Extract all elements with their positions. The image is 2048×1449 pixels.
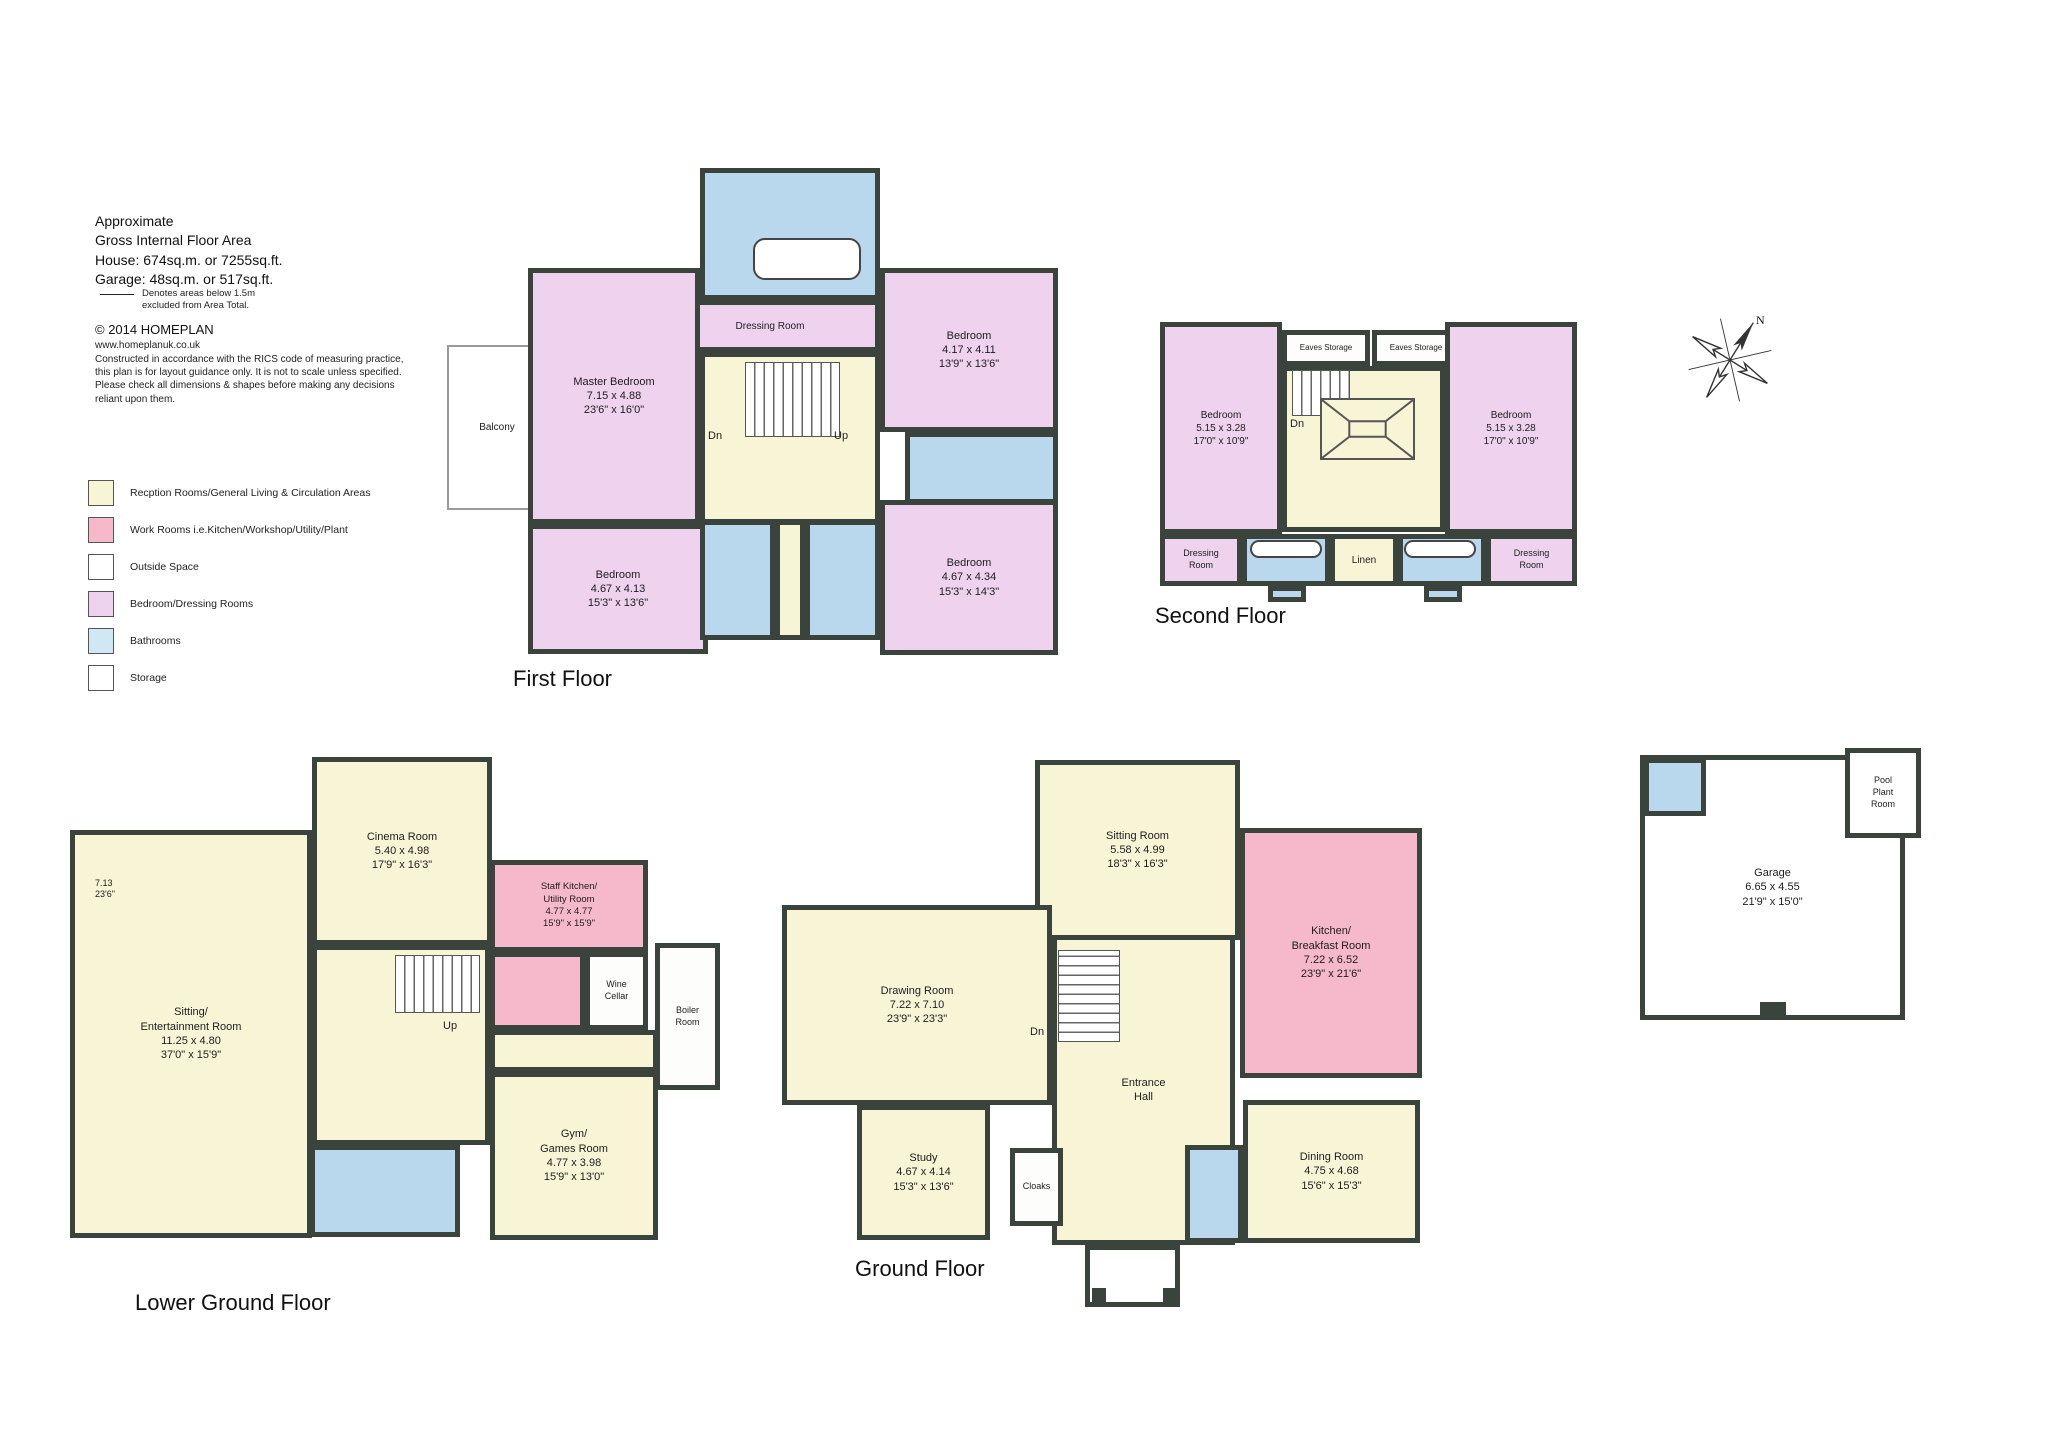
legend-label: Outside Space (130, 561, 199, 573)
room-label: Dressing Room (1183, 548, 1219, 571)
legend-row-work: Work Rooms i.e.Kitchen/Workshop/Utility/… (88, 517, 370, 543)
room-label: Study 4.67 x 4.14 15'3" x 13'6" (893, 1151, 953, 1194)
room-eaves-storage-left: Eaves Storage (1282, 330, 1370, 366)
legend-label: Recption Rooms/General Living & Circulat… (130, 487, 370, 499)
legend-row-bedroom: Bedroom/Dressing Rooms (88, 591, 370, 617)
legend-row-outside: Outside Space (88, 554, 370, 580)
area-summary-line: Approximate (95, 212, 283, 231)
room-kitchen-breakfast-room: Kitchen/ Breakfast Room 7.22 x 6.52 23'9… (1240, 828, 1422, 1078)
room-bath-tab-right (1424, 586, 1462, 602)
legend-swatch (88, 480, 114, 506)
disclaimer-text: Constructed in accordance with the RICS … (95, 353, 405, 406)
floor-title-ground-floor: Ground Floor (855, 1256, 985, 1282)
room-label: Boiler Room (675, 1005, 699, 1028)
room-lgf-bathroom (310, 1145, 460, 1237)
room-label: Staff Kitchen/ Utility Room 4.77 x 4.77 … (541, 881, 597, 930)
room-label: Sitting/ Entertainment Room 11.25 x 4.80… (141, 1005, 242, 1062)
plan-text-dn: Dn (1290, 418, 1304, 432)
room-label: Bedroom 5.15 x 3.28 17'0" x 10'9" (1484, 409, 1539, 448)
room-label: Eaves Storage (1300, 343, 1352, 353)
copyright-text: © 2014 HOMEPLAN (95, 322, 214, 337)
area-summary: Approximate Gross Internal Floor Area Ho… (95, 212, 283, 289)
room-bedroom-left: Bedroom 5.15 x 3.28 17'0" x 10'9" (1160, 322, 1282, 534)
plan-text-dn: Dn (708, 430, 722, 444)
website-text: www.homeplanuk.co.uk (95, 340, 200, 351)
floor-title-first-floor: First Floor (513, 666, 612, 692)
bath-fixture (1404, 540, 1476, 558)
floor-title-second-floor: Second Floor (1155, 603, 1286, 629)
room-label: Eaves Storage (1390, 343, 1442, 353)
area-note: Denotes areas below 1.5m excluded from A… (100, 288, 312, 313)
room-label: Bedroom 4.67 x 4.34 15'3" x 14'3" (939, 556, 999, 599)
bath-fixture (753, 238, 861, 280)
legend-row-bathrooms: Bathrooms (88, 628, 370, 654)
roof-lantern-glyph (1320, 398, 1415, 460)
room-label: Entrance Hall (1121, 1076, 1165, 1105)
legend-swatch (88, 665, 114, 691)
room-linen: Linen (1330, 534, 1398, 586)
room-garage-bathroom (1644, 758, 1706, 816)
room-label: Balcony (479, 421, 515, 434)
room-label: Cloaks (1023, 1181, 1051, 1193)
room-landing-south (775, 520, 805, 640)
room-cinema-room: Cinema Room 5.40 x 4.98 17'9" x 16'3" (312, 757, 492, 945)
room-label: Dressing Room (736, 320, 805, 333)
room-dressing-room-left: Dressing Room (1160, 534, 1242, 586)
room-sitting-room: Sitting Room 5.58 x 4.99 18'3" x 16'3" (1035, 760, 1240, 940)
plan-text-up: Up (443, 1020, 457, 1034)
room-cloaks: Cloaks (1010, 1148, 1063, 1226)
room-pool-plant-room: Pool Plant Room (1845, 748, 1921, 838)
stairs-glyph (1058, 950, 1120, 1042)
room-study: Study 4.67 x 4.14 15'3" x 13'6" (857, 1105, 990, 1240)
wall-block (1760, 1002, 1786, 1016)
legend-swatch (88, 628, 114, 654)
room-label: Garage 6.65 x 4.55 21'9" x 15'0" (1742, 866, 1802, 909)
room-bedroom-sw: Bedroom 4.67 x 4.13 15'3" x 13'6" (528, 524, 708, 654)
room-label: Gym/ Games Room 4.77 x 3.98 15'9" x 13'0… (540, 1127, 608, 1184)
compass-north-label: N (1756, 313, 1765, 327)
legend-row-storage: Storage (88, 665, 370, 691)
legend: Recption Rooms/General Living & Circulat… (88, 480, 370, 702)
room-boiler-room: Boiler Room (655, 943, 720, 1090)
room-bath-tab-left (1268, 586, 1306, 602)
room-master-bathroom (700, 168, 880, 300)
room-drawing-room: Drawing Room 7.22 x 7.10 23'9" x 23'3" (782, 905, 1052, 1105)
stairs-glyph (395, 955, 480, 1013)
room-utility-lower (490, 952, 585, 1030)
room-label: Wine Cellar (605, 979, 629, 1002)
plan-text-713236: 7.13 23'6" (95, 878, 115, 901)
legend-label: Bathrooms (130, 635, 181, 647)
dash-glyph (100, 294, 134, 295)
legend-label: Bedroom/Dressing Rooms (130, 598, 253, 610)
room-dining-room: Dining Room 4.75 x 4.68 15'6" x 15'3" (1243, 1100, 1420, 1243)
stairs-glyph (745, 362, 840, 437)
room-label: Master Bedroom 7.15 x 4.88 23'6" x 16'0" (573, 375, 654, 418)
room-gym-games-room: Gym/ Games Room 4.77 x 3.98 15'9" x 13'0… (490, 1072, 658, 1240)
legend-row-reception: Recption Rooms/General Living & Circulat… (88, 480, 370, 506)
room-label: Dining Room 4.75 x 4.68 15'6" x 15'3" (1300, 1150, 1364, 1193)
room-label: Sitting Room 5.58 x 4.99 18'3" x 16'3" (1106, 829, 1169, 872)
room-label: Dressing Room (1514, 548, 1550, 571)
room-shower-room-a (700, 520, 775, 640)
room-dressing-room-right: Dressing Room (1486, 534, 1577, 586)
room-label: Bedroom 4.17 x 4.11 13'9" x 13'6" (939, 329, 999, 372)
bath-fixture (1250, 540, 1322, 558)
area-summary-line: Garage: 48sq.m. or 517sq.ft. (95, 270, 283, 289)
room-bedroom-right: Bedroom 5.15 x 3.28 17'0" x 10'9" (1445, 322, 1577, 534)
room-label: Drawing Room 7.22 x 7.10 23'9" x 23'3" (881, 984, 954, 1027)
legend-swatch (88, 554, 114, 580)
room-label: Cinema Room 5.40 x 4.98 17'9" x 16'3" (367, 830, 437, 873)
legend-swatch (88, 591, 114, 617)
area-summary-line: Gross Internal Floor Area (95, 231, 283, 250)
compass-rose: N (1680, 310, 1780, 410)
room-label: Bedroom 4.67 x 4.13 15'3" x 13'6" (588, 568, 648, 611)
room-bedroom-ne: Bedroom 4.17 x 4.11 13'9" x 13'6" (880, 268, 1058, 432)
plan-text-up: Up (834, 430, 848, 444)
wall-block (1092, 1288, 1106, 1302)
plan-text-dn: Dn (1030, 1026, 1044, 1040)
legend-swatch (88, 517, 114, 543)
area-note-text: Denotes areas below 1.5m excluded from A… (142, 288, 312, 313)
floor-title-lower-ground-floor: Lower Ground Floor (135, 1290, 331, 1316)
room-staff-kitchen-utility: Staff Kitchen/ Utility Room 4.77 x 4.77 … (490, 860, 648, 952)
room-lgf-hall-2 (490, 1030, 658, 1072)
room-master-bedroom: Master Bedroom 7.15 x 4.88 23'6" x 16'0" (528, 268, 700, 524)
room-label: Linen (1352, 554, 1376, 567)
area-summary-line: House: 674sq.m. or 7255sq.ft. (95, 251, 283, 270)
room-shower-room-b (805, 520, 880, 640)
room-label: Bedroom 5.15 x 3.28 17'0" x 10'9" (1194, 409, 1249, 448)
room-ensuite-ne (905, 432, 1058, 504)
legend-label: Storage (130, 672, 167, 684)
room-wine-cellar: Wine Cellar (585, 952, 648, 1030)
room-label: Pool Plant Room (1871, 775, 1895, 810)
legend-label: Work Rooms i.e.Kitchen/Workshop/Utility/… (130, 524, 348, 536)
wall-block (1163, 1288, 1177, 1302)
room-label: Kitchen/ Breakfast Room 7.22 x 6.52 23'9… (1292, 924, 1371, 981)
room-gf-wc (1185, 1145, 1243, 1243)
room-bedroom-se: Bedroom 4.67 x 4.34 15'3" x 14'3" (880, 500, 1058, 655)
